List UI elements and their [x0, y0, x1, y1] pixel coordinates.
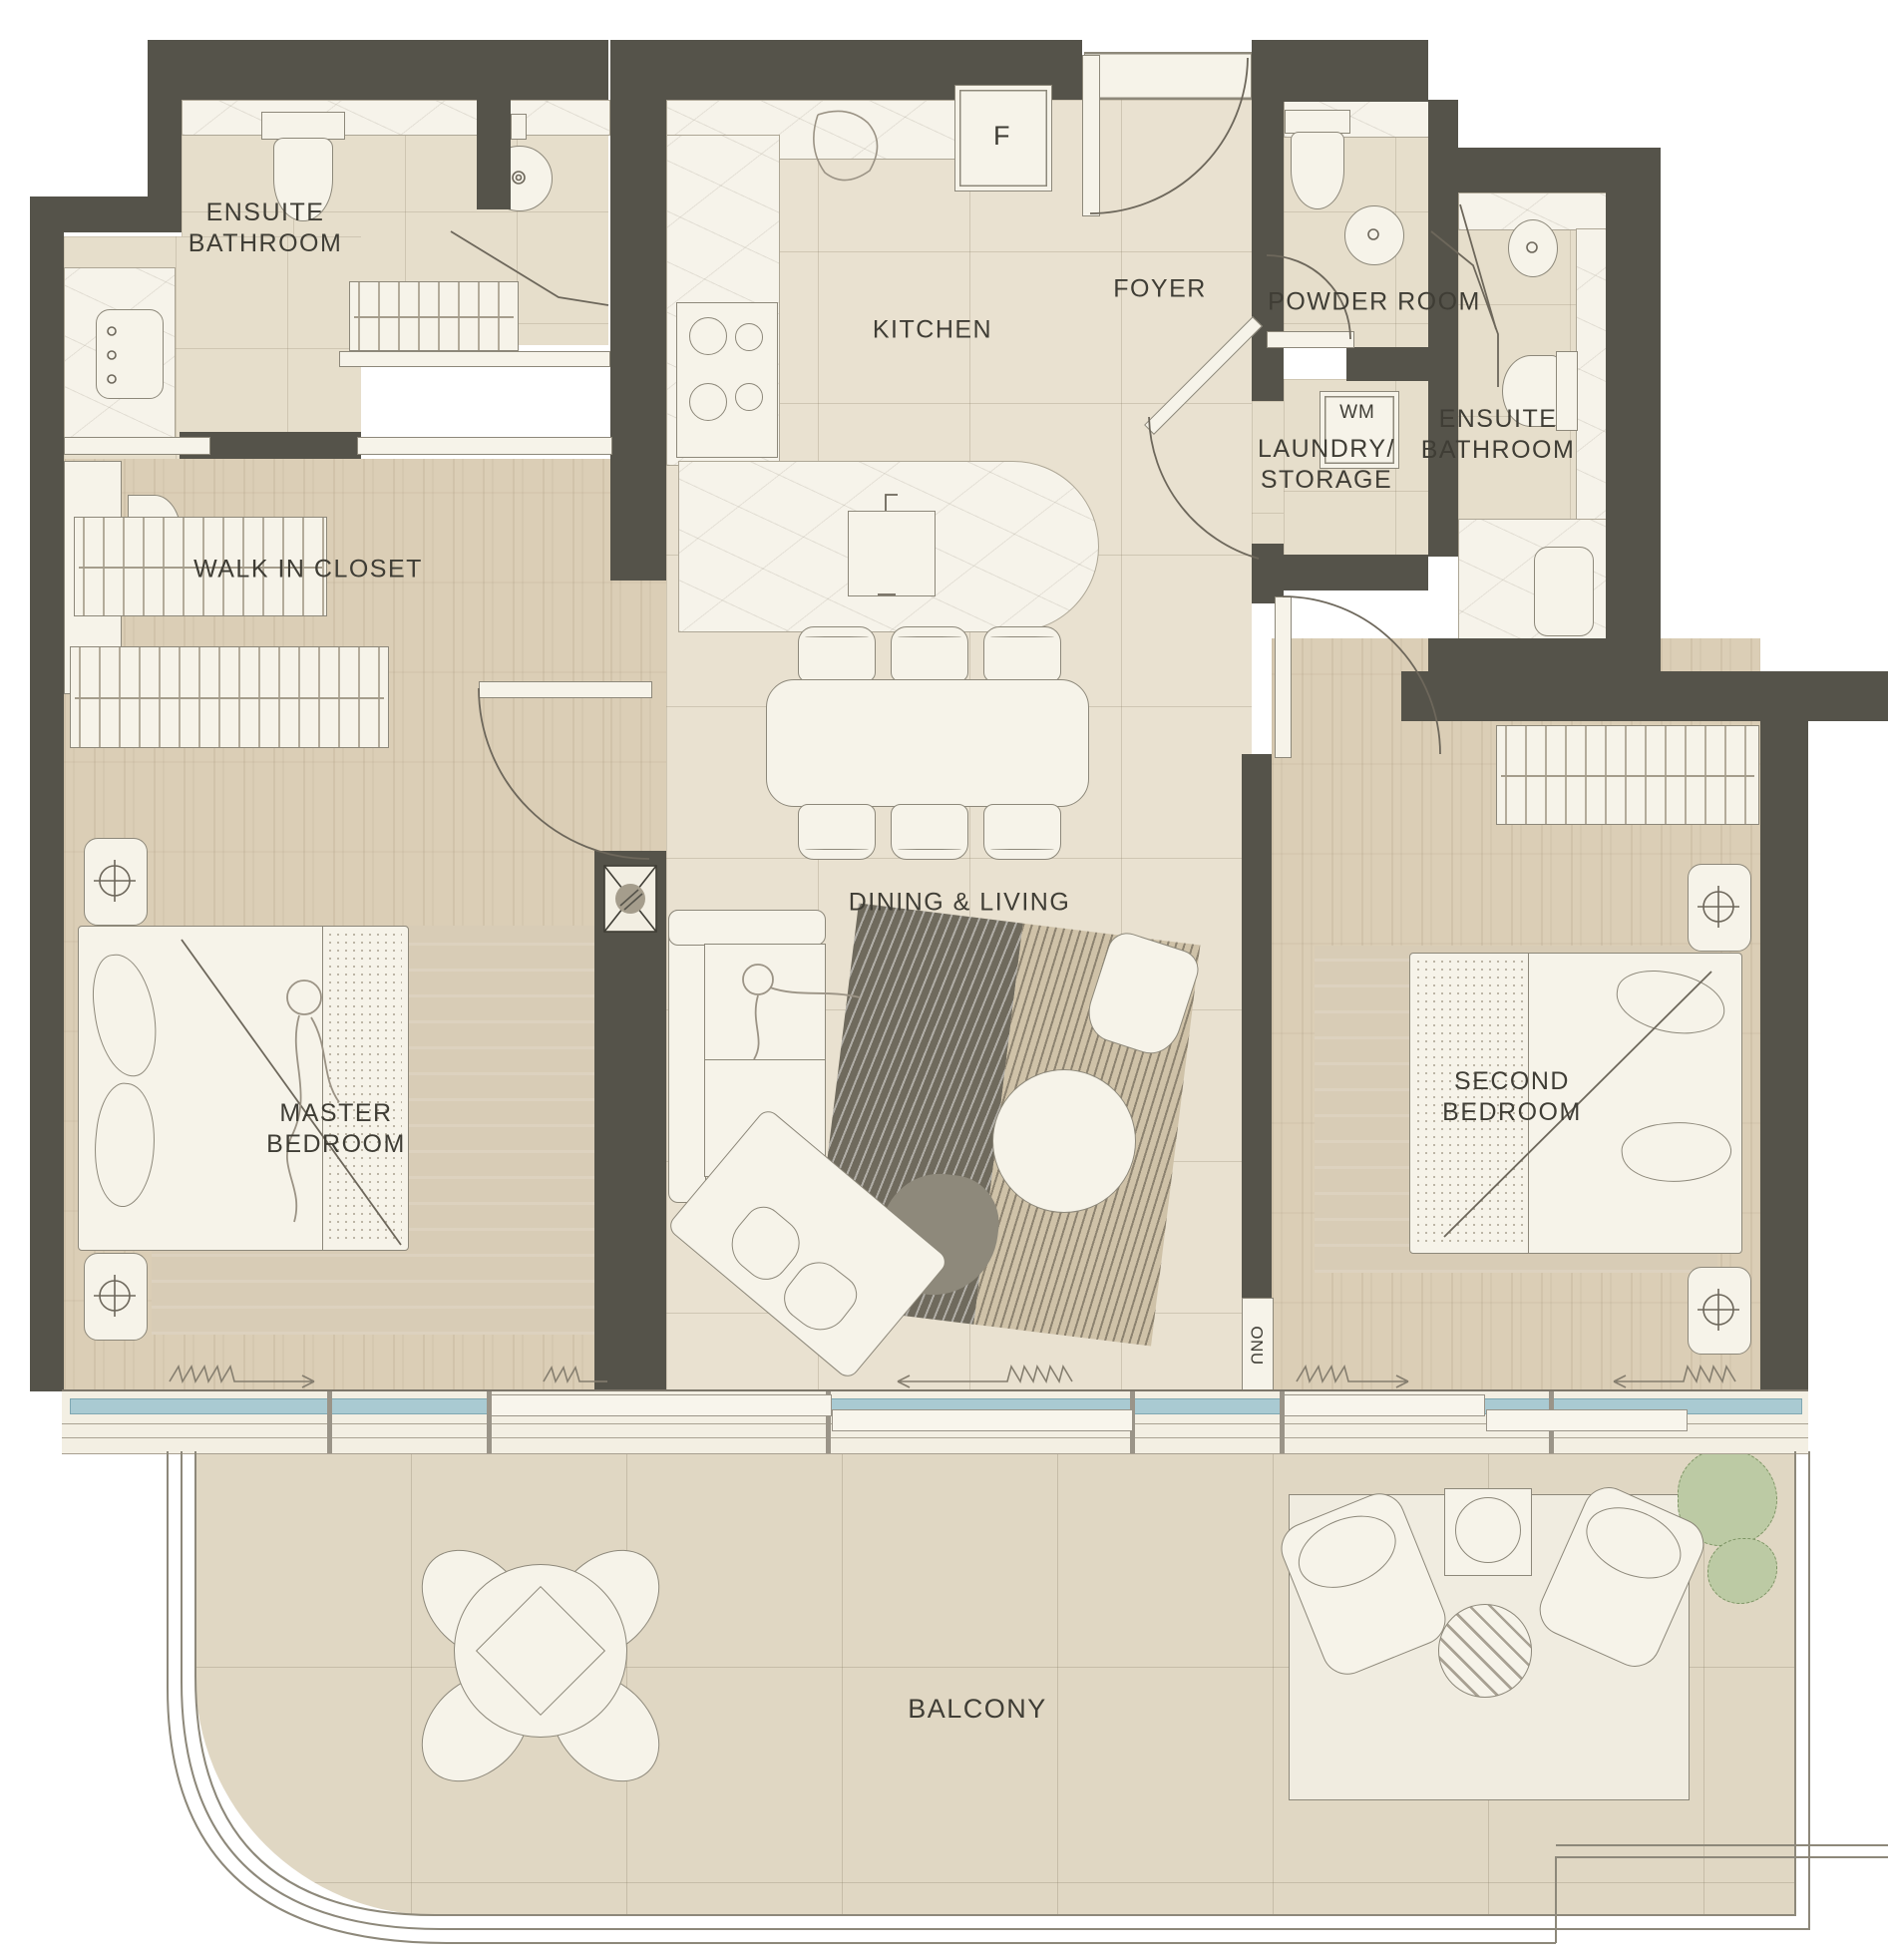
toilet2-bowl: [1291, 132, 1344, 209]
master-door-leaf: [479, 681, 652, 698]
dining-chair: [798, 804, 876, 860]
wall: [594, 948, 666, 1393]
sofa-back: [668, 910, 706, 1203]
label-kitchen: KITCHEN: [873, 314, 992, 345]
wall: [148, 40, 608, 100]
window-mullion: [327, 1391, 332, 1453]
bed2-closet-rack: [1496, 725, 1759, 825]
bed2-nightstand-bottom: [1688, 1267, 1751, 1355]
stove: [676, 302, 778, 458]
window-band: [62, 1389, 1808, 1454]
coffee-table: [992, 1069, 1136, 1213]
master-bed-line: [322, 927, 323, 1250]
sofa-armrest: [668, 910, 826, 946]
shower2-slider: [64, 437, 210, 455]
vanity2-sink: [1534, 547, 1594, 636]
label-washing-machine: WM: [1339, 401, 1375, 425]
basin2: [1344, 205, 1404, 265]
wall: [610, 100, 666, 581]
closet-slider: [357, 437, 612, 455]
wall: [148, 40, 182, 215]
dining-chair: [891, 626, 968, 682]
dining-table: [766, 679, 1089, 807]
outdoor-side-table: [1444, 1488, 1532, 1576]
burner: [735, 383, 763, 411]
entry-threshold: [1084, 52, 1252, 100]
wall: [1242, 754, 1272, 1298]
label-walk-in-closet: WALK IN CLOSET: [193, 554, 423, 585]
basin1-faucet: [511, 114, 527, 140]
wall: [1606, 193, 1661, 671]
shower1-slider: [339, 351, 610, 367]
wall: [1428, 148, 1661, 193]
dining-chair: [983, 626, 1061, 682]
sofa-seat: [704, 944, 826, 1061]
label-balcony: BALCONY: [908, 1693, 1047, 1727]
wall: [1252, 351, 1284, 401]
label-ensuite-bathroom-1: ENSUITE BATHROOM: [189, 197, 343, 260]
label-ensuite-bathroom-2: ENSUITE BATHROOM: [1421, 404, 1576, 467]
master-bed-mattress: [326, 931, 402, 1244]
burner: [689, 317, 727, 355]
closet-rack-upper: [349, 281, 519, 351]
label-utility-onu: ONU: [1246, 1326, 1267, 1365]
island-sink: [848, 511, 936, 596]
wall: [477, 100, 511, 209]
bed2-door-leaf: [1275, 596, 1292, 758]
balcony-table-mat: [476, 1586, 605, 1716]
bed2-nightstand-top: [1688, 864, 1751, 952]
powder-door-leaf: [1267, 331, 1354, 348]
burner: [735, 323, 763, 351]
balcony-table: [454, 1564, 627, 1738]
dining-chair: [798, 626, 876, 682]
entry-door-leaf: [1082, 55, 1100, 216]
wall: [1401, 671, 1768, 721]
vanity1-sink: [96, 309, 164, 399]
wall: [1252, 40, 1428, 102]
master-nightstand-top: [84, 838, 148, 926]
label-powder-room: POWDER ROOM: [1268, 286, 1481, 317]
label-foyer: FOYER: [1113, 273, 1207, 304]
master-nightstand-bottom: [84, 1253, 148, 1341]
wall: [1252, 555, 1428, 590]
window-frame-line: [62, 1437, 1808, 1438]
toilet1-tank: [261, 112, 345, 140]
sliding-door-panel: [491, 1394, 832, 1416]
dining-chair: [891, 804, 968, 860]
sliding-door-panel: [1486, 1409, 1688, 1431]
dining-chair: [983, 804, 1061, 860]
burner: [689, 383, 727, 421]
wall: [1760, 671, 1808, 1393]
basin3: [1508, 219, 1558, 277]
ensuite1-counter: [182, 100, 610, 136]
wall: [1346, 347, 1428, 381]
outdoor-side-table-bowl: [1455, 1497, 1521, 1563]
label-dining-living: DINING & LIVING: [849, 887, 1071, 918]
wall: [30, 196, 64, 1391]
wall: [1808, 671, 1888, 721]
toilet2-tank: [1285, 110, 1350, 134]
structural-column: [594, 851, 666, 950]
label-fridge: F: [993, 120, 1011, 154]
sliding-door-panel: [1284, 1394, 1485, 1416]
sliding-door-panel: [832, 1409, 1133, 1431]
outdoor-striped-table: [1438, 1604, 1532, 1698]
label-second-bedroom: SECOND BEDROOM: [1442, 1066, 1582, 1129]
floor-plan: ENSUITE BATHROOM WALK IN CLOSET KITCHEN …: [0, 0, 1888, 1960]
label-master-bedroom: MASTER BEDROOM: [266, 1098, 406, 1161]
label-laundry-storage: LAUNDRY/ STORAGE: [1258, 434, 1395, 497]
master-closet-rack: [70, 646, 389, 748]
